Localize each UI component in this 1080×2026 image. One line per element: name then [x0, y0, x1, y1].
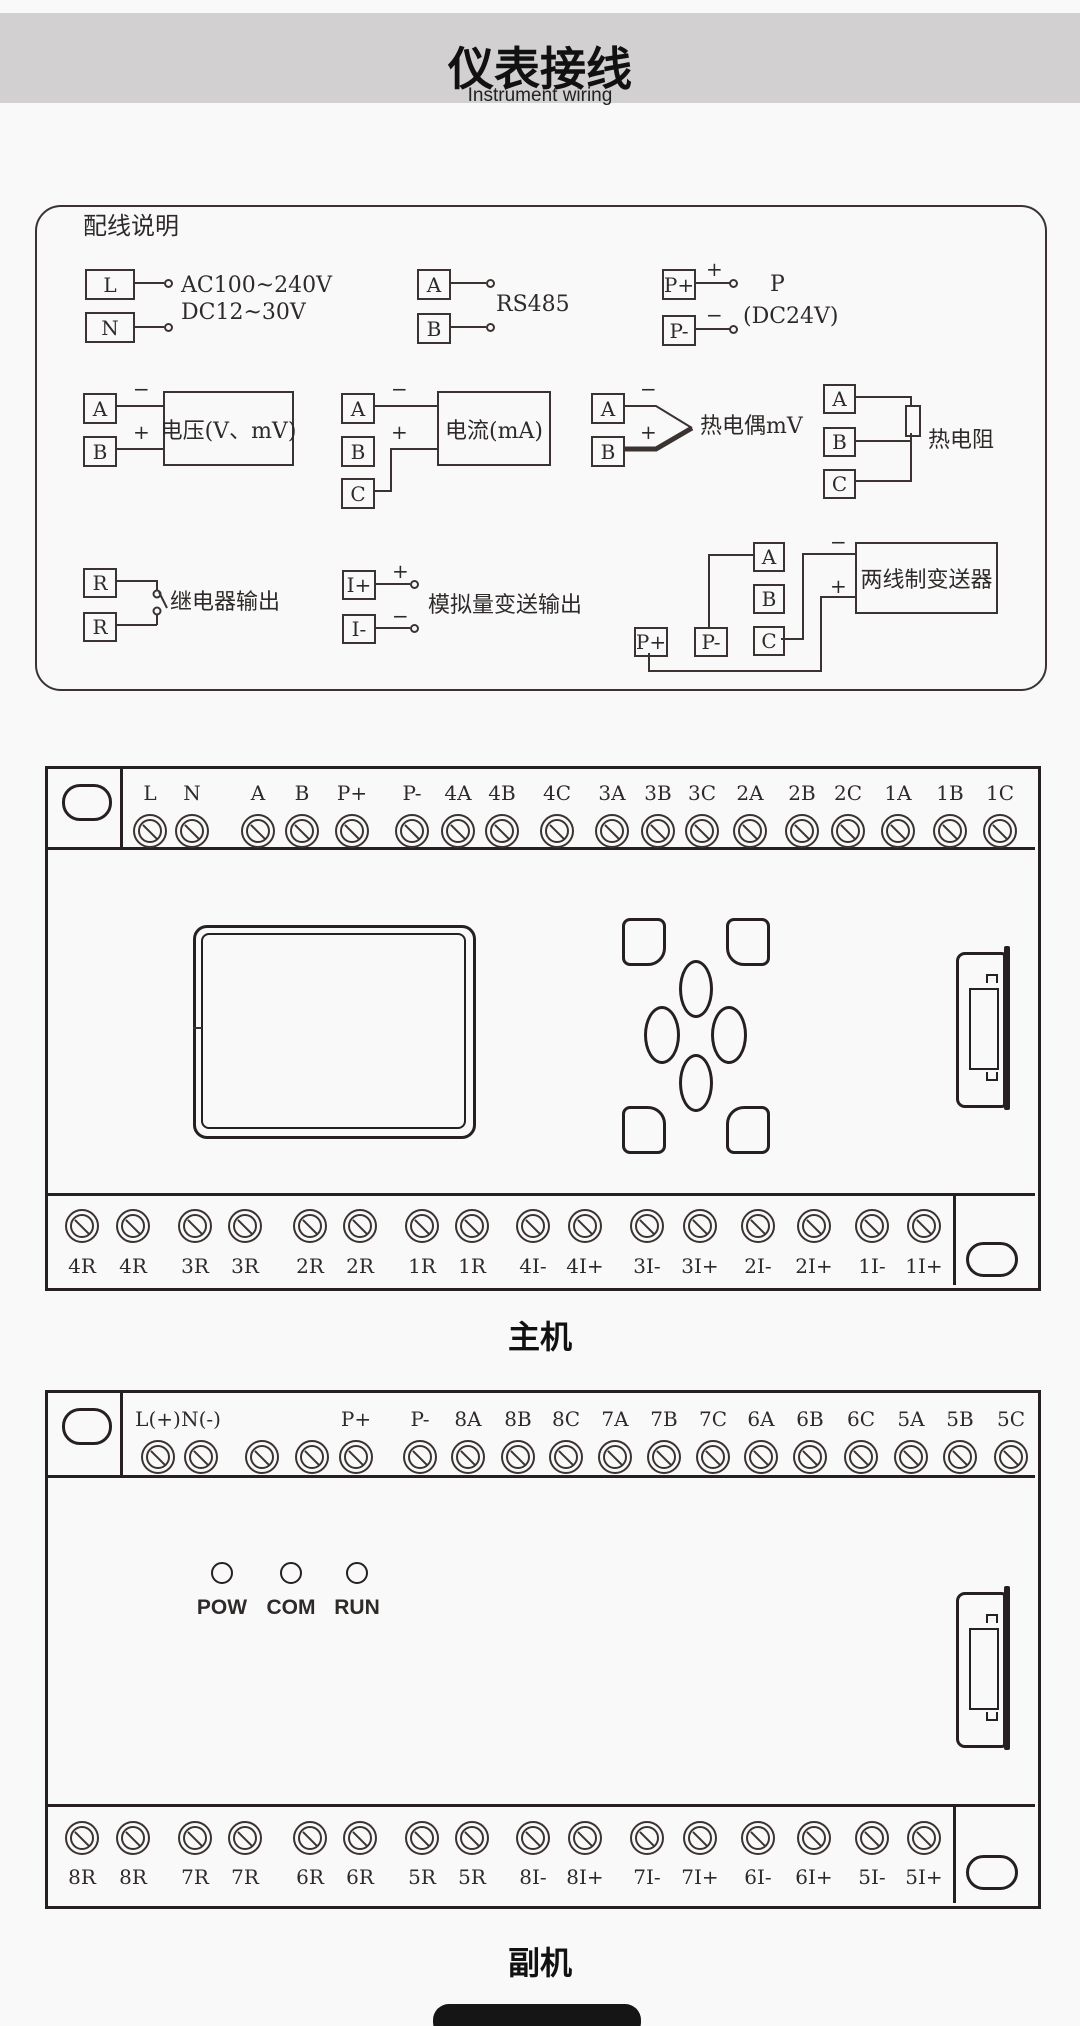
display-tick	[193, 1027, 202, 1029]
wire-end-circle	[164, 279, 173, 288]
terminal-label: 3I+	[681, 1255, 718, 1277]
main-unit-caption: 主机	[0, 1312, 1080, 1358]
terminal-screw	[116, 1209, 150, 1243]
terminal-screw	[994, 1440, 1028, 1474]
analog-output-label: 模拟量变送输出	[428, 594, 582, 618]
terminal-screw	[65, 1821, 99, 1855]
wire-end-circle	[410, 580, 419, 589]
terminal-label: 3A	[598, 782, 625, 804]
terminal-screw	[630, 1821, 664, 1855]
wiring-box-title: 配线说明	[83, 214, 179, 238]
terminal-label: 1I+	[905, 1255, 942, 1277]
terminal-screw	[293, 1209, 327, 1243]
wire	[115, 448, 163, 450]
wire	[781, 638, 804, 640]
terminal-screw	[141, 1440, 175, 1474]
plus-sign: +	[392, 561, 409, 581]
terminal-label: 8C	[552, 1408, 580, 1430]
terminal-C: C	[823, 469, 856, 499]
terminal-A: A	[341, 393, 375, 424]
terminal-label: 6R	[296, 1866, 324, 1888]
terminal-screw	[630, 1209, 664, 1243]
terminal-label: 4B	[488, 782, 515, 804]
terminal-screw	[549, 1440, 583, 1474]
minus-sign: −	[830, 532, 847, 552]
terminal-label: 6C	[847, 1408, 875, 1430]
wire-end-circle	[486, 323, 495, 332]
terminal-screw	[228, 1209, 262, 1243]
terminal-screw	[395, 814, 429, 848]
terminal-label: 5I+	[905, 1866, 942, 1888]
terminal-label: N	[183, 782, 201, 804]
terminal-screw	[647, 1440, 681, 1474]
page-subtitle: Instrument wiring	[0, 85, 1080, 107]
mount-hole	[62, 784, 112, 821]
terminal-screw	[696, 1440, 730, 1474]
terminal-A: A	[753, 542, 785, 572]
page: 仪表接线 Instrument wiring 配线说明 L N AC100~24…	[0, 0, 1080, 2026]
wire	[115, 624, 157, 626]
terminal-screw	[568, 1209, 602, 1243]
thermocouple-label: 热电偶mV	[700, 415, 803, 439]
terminal-label: 7R	[181, 1866, 209, 1888]
terminal-screw	[178, 1821, 212, 1855]
terminal-screw	[744, 1440, 778, 1474]
terminal-label: 1B	[936, 782, 963, 804]
terminal-screw	[405, 1209, 439, 1243]
terminal-label: 2A	[736, 782, 763, 804]
divider	[45, 1804, 1035, 1807]
terminal-screw	[831, 814, 865, 848]
dc24-label-p: P	[770, 273, 785, 297]
wire	[449, 326, 486, 328]
terminal-screw	[65, 1209, 99, 1243]
terminal-P-minus: P-	[662, 315, 696, 346]
terminal-label: 4R	[119, 1255, 147, 1277]
terminal-B: B	[591, 436, 625, 467]
terminal-label: 7R	[231, 1866, 259, 1888]
terminal-label: 8R	[119, 1866, 147, 1888]
wire-end-circle	[164, 323, 173, 332]
terminal-label: 5R	[458, 1866, 486, 1888]
led-com	[280, 1562, 302, 1584]
led-label: RUN	[334, 1596, 380, 1620]
power-range-dc: DC12~30V	[181, 301, 306, 325]
wire	[854, 440, 912, 442]
terminal-label: 3R	[181, 1255, 209, 1277]
rs485-label: RS485	[496, 293, 570, 317]
wire	[449, 282, 486, 284]
terminal-label: 5B	[946, 1408, 973, 1430]
keypad-button-bottom-right[interactable]	[726, 1106, 770, 1154]
terminal-screw	[598, 1440, 632, 1474]
plus-sign: +	[830, 576, 847, 596]
terminal-label: L	[143, 782, 156, 804]
terminal-label: 7I+	[681, 1866, 718, 1888]
wire	[694, 328, 730, 330]
terminal-screw	[793, 1440, 827, 1474]
terminal-label: 6I+	[795, 1866, 832, 1888]
wire	[694, 282, 730, 284]
terminal-screw	[741, 1209, 775, 1243]
terminal-label: 3C	[688, 782, 716, 804]
terminal-label: 7B	[650, 1408, 677, 1430]
terminal-B: B	[83, 436, 117, 467]
divider	[953, 1807, 956, 1903]
terminal-screw	[241, 814, 275, 848]
terminal-screw	[293, 1821, 327, 1855]
plus-sign: +	[391, 422, 408, 442]
minus-sign: −	[640, 379, 657, 399]
keypad-button-top-right[interactable]	[726, 918, 770, 966]
terminal-B: B	[823, 427, 856, 457]
terminal-label: 2B	[788, 782, 815, 804]
connector-notch	[986, 1614, 998, 1623]
terminal-screw	[943, 1440, 977, 1474]
terminal-screw	[228, 1821, 262, 1855]
terminal-label: 3I-	[633, 1255, 660, 1277]
terminal-screw	[797, 1209, 831, 1243]
terminal-label: 1I-	[858, 1255, 885, 1277]
terminal-screw	[516, 1821, 550, 1855]
connector-edge	[1004, 1586, 1010, 1750]
terminal-screw	[595, 814, 629, 848]
terminal-screw	[455, 1821, 489, 1855]
terminal-label: 8I-	[519, 1866, 546, 1888]
terminal-screw	[485, 814, 519, 848]
wire	[708, 554, 753, 556]
terminal-label: 7C	[699, 1408, 727, 1430]
terminal-label: 2R	[346, 1255, 374, 1277]
terminal-A: A	[83, 393, 117, 424]
keypad-button-left[interactable]	[644, 1006, 680, 1064]
terminal-screw	[797, 1821, 831, 1855]
terminal-screw	[339, 1440, 373, 1474]
terminal-screw	[683, 1821, 717, 1855]
terminal-B: B	[753, 584, 785, 614]
rtd-resistor	[905, 405, 921, 437]
terminal-screw	[907, 1209, 941, 1243]
terminal-label: 1R	[408, 1255, 436, 1277]
terminal-label: 8R	[68, 1866, 96, 1888]
terminal-P-minus: P-	[694, 627, 728, 657]
terminal-label: A	[251, 782, 265, 804]
terminal-screw	[933, 814, 967, 848]
terminal-B: B	[341, 436, 375, 467]
terminal-screw	[855, 1209, 889, 1243]
terminal-label: 2I-	[744, 1255, 771, 1277]
minus-sign: −	[392, 606, 409, 626]
led-run	[346, 1562, 368, 1584]
wire	[373, 405, 437, 407]
wire	[648, 653, 650, 672]
terminal-A: A	[823, 384, 856, 414]
terminal-screw	[741, 1821, 775, 1855]
thermocouple-junction	[623, 395, 698, 461]
terminal-screw	[907, 1821, 941, 1855]
terminal-label: 2I+	[795, 1255, 832, 1277]
wire	[910, 396, 912, 405]
current-input-box: 电流(mA)	[437, 391, 551, 466]
keypad-button-up[interactable]	[679, 960, 713, 1018]
wire	[115, 580, 157, 582]
terminal-label: B	[295, 782, 310, 804]
terminal-label: 6A	[747, 1408, 774, 1430]
terminal-L: L	[85, 269, 135, 300]
two-wire-transmitter-box: 两线制变送器	[855, 542, 998, 614]
terminal-label: 3R	[231, 1255, 259, 1277]
terminal-label: 4R	[68, 1255, 96, 1277]
terminal-C: C	[341, 478, 375, 509]
terminal-label: 7I-	[633, 1866, 660, 1888]
terminal-screw	[335, 814, 369, 848]
dc24-label-v: (DC24V)	[743, 305, 839, 329]
terminal-A: A	[417, 269, 451, 300]
wire	[115, 405, 163, 407]
led-label: POW	[197, 1596, 247, 1620]
terminal-label: P+	[341, 1408, 371, 1430]
wire	[390, 448, 437, 450]
keypad-button-top-left[interactable]	[622, 918, 666, 966]
terminal-label: 7A	[601, 1408, 628, 1430]
wire	[854, 480, 912, 482]
terminal-N: N	[85, 312, 135, 343]
terminal-screw	[178, 1209, 212, 1243]
wire	[708, 554, 710, 627]
led-pow	[211, 1562, 233, 1584]
terminal-screw	[516, 1209, 550, 1243]
wire	[373, 490, 392, 492]
connector-edge	[1004, 946, 1010, 1110]
terminal-screw	[451, 1440, 485, 1474]
terminal-label: 4I+	[566, 1255, 603, 1277]
wire	[648, 670, 822, 672]
terminal-label: P-	[402, 782, 421, 804]
terminal-label: P+	[337, 782, 367, 804]
terminal-screw	[855, 1821, 889, 1855]
terminal-screw	[455, 1209, 489, 1243]
voltage-input-box: 电压(V、mV)	[163, 391, 294, 466]
terminal-label: 6B	[796, 1408, 823, 1430]
terminal-label: 2C	[834, 782, 862, 804]
next-section-bar	[433, 2004, 641, 2026]
terminal-label: L(+)	[135, 1408, 181, 1430]
wire	[390, 448, 392, 492]
wire	[820, 596, 822, 672]
wire-end-circle	[729, 279, 738, 288]
terminal-screw	[343, 1821, 377, 1855]
terminal-label: 8I+	[566, 1866, 603, 1888]
wire-end-circle	[410, 624, 419, 633]
plus-sign: +	[706, 259, 723, 279]
plus-sign: +	[133, 422, 150, 442]
terminal-label: 4A	[444, 782, 471, 804]
keypad-button-right[interactable]	[711, 1006, 747, 1064]
terminal-label: 6R	[346, 1866, 374, 1888]
terminal-label: 5R	[408, 1866, 436, 1888]
terminal-screw	[733, 814, 767, 848]
wire-end-circle	[729, 325, 738, 334]
terminal-screw	[285, 814, 319, 848]
wire	[133, 282, 164, 284]
terminal-screw	[881, 814, 915, 848]
terminal-screw	[133, 814, 167, 848]
divider	[120, 766, 123, 850]
terminal-screw	[983, 814, 1017, 848]
terminal-screw	[116, 1821, 150, 1855]
terminal-screw	[641, 814, 675, 848]
wire	[374, 583, 410, 585]
connector-notch	[986, 974, 998, 983]
terminal-screw	[295, 1440, 329, 1474]
terminal-P-plus: P+	[662, 269, 696, 300]
wire	[854, 396, 912, 398]
rtd-label: 热电阻	[928, 429, 994, 453]
terminal-screw	[683, 1209, 717, 1243]
lcd-display-inner	[201, 933, 466, 1129]
terminal-label: 5A	[897, 1408, 924, 1430]
terminal-screw	[184, 1440, 218, 1474]
relay-output-label: 继电器输出	[170, 591, 280, 615]
terminal-screw	[343, 1209, 377, 1243]
plus-sign: +	[640, 422, 657, 442]
terminal-screw	[405, 1821, 439, 1855]
terminal-screw	[540, 814, 574, 848]
terminal-screw	[894, 1440, 928, 1474]
mount-hole	[62, 1408, 112, 1445]
terminal-I-plus: I+	[342, 570, 376, 600]
terminal-screw	[844, 1440, 878, 1474]
side-connector-slot	[969, 1628, 999, 1710]
terminal-C: C	[753, 626, 785, 656]
connector-notch	[986, 1712, 998, 1721]
terminal-screw	[245, 1440, 279, 1474]
terminal-screw	[175, 814, 209, 848]
terminal-screw	[501, 1440, 535, 1474]
terminal-label: 3B	[644, 782, 671, 804]
divider	[953, 1196, 956, 1285]
wire-end-circle	[486, 279, 495, 288]
terminal-R1: R	[83, 568, 117, 598]
wire	[133, 326, 164, 328]
terminal-label: 2R	[296, 1255, 324, 1277]
minus-sign: −	[133, 379, 150, 399]
minus-sign: −	[391, 379, 408, 399]
terminal-label: 4C	[543, 782, 571, 804]
terminal-label: 8A	[454, 1408, 481, 1430]
terminal-label: P-	[410, 1408, 429, 1430]
terminal-B: B	[417, 313, 451, 344]
terminal-screw	[785, 814, 819, 848]
power-range-ac: AC100~240V	[181, 274, 332, 298]
terminal-R2: R	[83, 612, 117, 642]
terminal-screw	[403, 1440, 437, 1474]
terminal-screw	[441, 814, 475, 848]
terminal-label: 5C	[997, 1408, 1025, 1430]
wire	[802, 553, 855, 555]
terminal-screw	[685, 814, 719, 848]
terminal-label: 1C	[986, 782, 1014, 804]
terminal-label: 6I-	[744, 1866, 771, 1888]
mount-hole	[966, 1242, 1018, 1277]
aux-unit-caption: 副机	[0, 1938, 1080, 1984]
terminal-I-minus: I-	[342, 614, 376, 644]
divider	[120, 1390, 123, 1475]
mount-hole	[966, 1855, 1018, 1890]
terminal-P-plus: P+	[634, 627, 668, 657]
keypad-button-down[interactable]	[679, 1054, 713, 1112]
side-connector-slot	[969, 988, 999, 1070]
minus-sign: −	[706, 305, 723, 325]
terminal-label: 1R	[458, 1255, 486, 1277]
terminal-label: 8B	[504, 1408, 531, 1430]
divider	[45, 1193, 1035, 1196]
terminal-A: A	[591, 393, 625, 424]
divider	[45, 1475, 1035, 1478]
wire	[802, 553, 804, 640]
led-label: COM	[267, 1596, 316, 1620]
terminal-label: 4I-	[519, 1255, 546, 1277]
terminal-label: N(-)	[181, 1408, 221, 1430]
keypad-button-bottom-left[interactable]	[622, 1106, 666, 1154]
connector-notch	[986, 1072, 998, 1081]
terminal-label: 1A	[884, 782, 911, 804]
header-bar: 仪表接线 Instrument wiring	[0, 13, 1080, 103]
terminal-screw	[568, 1821, 602, 1855]
terminal-label: 5I-	[858, 1866, 885, 1888]
